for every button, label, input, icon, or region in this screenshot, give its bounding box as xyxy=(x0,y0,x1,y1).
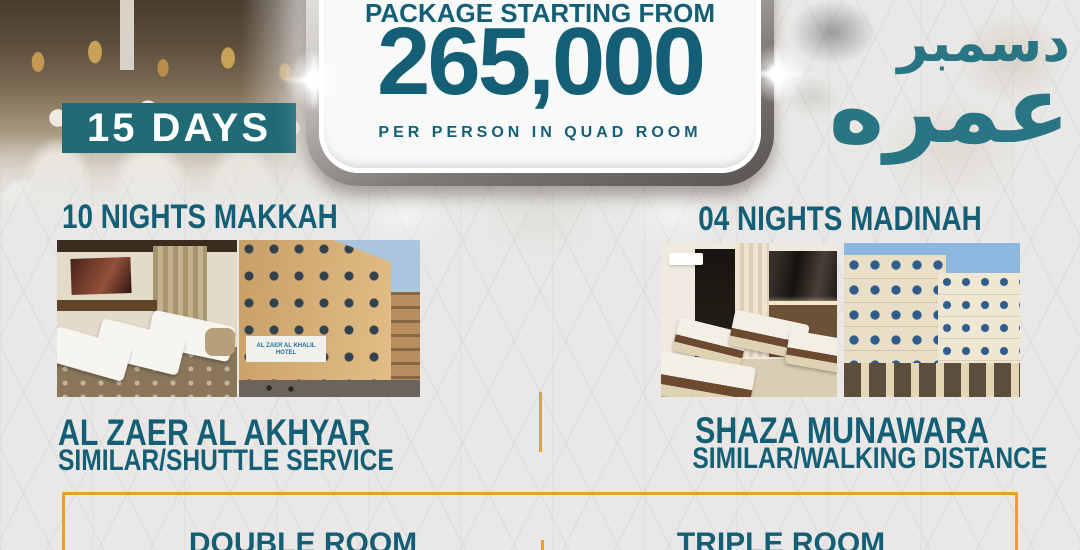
makkah-heading: 10 NIGHTS MAKKAH xyxy=(62,200,338,234)
umrah-package-poster: دسمبر عمره 15 DAYS PACKAGE STARTING FROM… xyxy=(0,0,1080,550)
madinah-heading: 04 NIGHTS MADINAH xyxy=(692,202,987,236)
makkah-hotel-note: SIMILAR/SHUTTLE SERVICE xyxy=(58,446,394,476)
calligraphy-line-umrah: عمره xyxy=(829,64,1070,158)
photo-artwork xyxy=(70,257,131,295)
room-options-panel: DOUBLE ROOM TRIPLE ROOM xyxy=(62,492,1018,550)
photo-artwork xyxy=(769,251,837,301)
madinah-hotel-note: SIMILAR/WALKING DISTANCE xyxy=(692,444,987,474)
room-option-double: DOUBLE ROOM xyxy=(65,529,541,550)
price-value: 265,000 xyxy=(306,14,774,110)
duration-badge-label: 15 DAYS xyxy=(87,106,271,151)
duration-badge: 15 DAYS xyxy=(62,103,296,153)
madinah-hotel-exterior-photo xyxy=(844,243,1020,397)
photo-hotel-sign: AL ZAER AL KHALIL HOTEL xyxy=(246,336,326,362)
photo-ac-unit xyxy=(669,253,703,265)
makkah-hotel-exterior-photo: AL ZAER AL KHALIL HOTEL xyxy=(239,240,420,397)
photo-ceiling xyxy=(57,240,237,252)
photo-arcade xyxy=(844,363,1020,397)
makkah-room-photo xyxy=(57,240,237,397)
arabic-calligraphy: دسمبر عمره xyxy=(829,16,1070,158)
photo-headboard xyxy=(57,300,157,311)
photo-building xyxy=(239,240,391,397)
price-card-subtitle: PER PERSON IN QUAD ROOM xyxy=(306,124,774,142)
price-card: PACKAGE STARTING FROM 265,000 PER PERSON… xyxy=(306,0,774,186)
madinah-room-photo xyxy=(661,243,837,397)
photo-chair xyxy=(205,328,235,356)
column-divider xyxy=(539,392,542,452)
room-option-triple: TRIPLE ROOM xyxy=(544,529,1018,550)
photo-street xyxy=(239,380,420,397)
